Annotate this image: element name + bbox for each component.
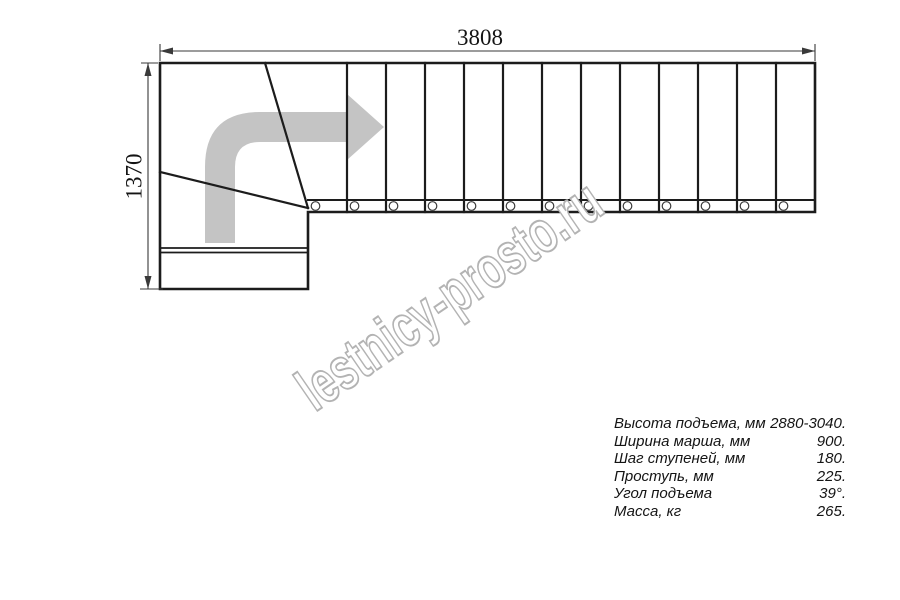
spec-row: Шаг ступеней, мм180. — [614, 450, 846, 468]
spec-label: Высота подъема, мм — [614, 415, 766, 433]
spec-row: Масса, кг265. — [614, 503, 846, 521]
spec-label: Шаг ступеней, мм — [614, 450, 745, 468]
baluster-circle — [350, 202, 359, 211]
width-dimension-label: 1370 — [122, 131, 147, 223]
spec-label: Ширина марша, мм — [614, 433, 750, 451]
spec-label: Масса, кг — [614, 503, 681, 521]
baluster-circle — [389, 202, 398, 211]
baluster-circle — [701, 202, 710, 211]
spec-label: Проступь, мм — [614, 468, 714, 486]
watermark-text: lestnicy-prosto.ru — [284, 167, 614, 423]
baluster-circle — [467, 202, 476, 211]
baluster-circle — [662, 202, 671, 211]
direction-arrow — [205, 94, 384, 243]
dimension-arrowhead — [145, 276, 152, 289]
dimension-arrowhead — [145, 63, 152, 76]
spec-row: Высота подъема, мм2880-3040. — [614, 415, 846, 433]
spec-value: 180. — [817, 450, 846, 468]
baluster-circle — [779, 202, 788, 211]
baluster-circle — [311, 202, 320, 211]
spec-value: 39°. — [819, 485, 846, 503]
stair-plan-canvas: lestnicy-prosto.ru 3808 1370 Высота подъ… — [0, 0, 900, 600]
spec-row: Проступь, мм225. — [614, 468, 846, 486]
baluster-circle — [623, 202, 632, 211]
spec-value: 900. — [817, 433, 846, 451]
dimension-arrowhead — [802, 48, 815, 55]
spec-label: Угол подъема — [614, 485, 712, 503]
spec-value: 265. — [817, 503, 846, 521]
spec-value: 2880-3040. — [770, 415, 846, 433]
spec-table: Высота подъема, мм2880-3040.Ширина марша… — [614, 415, 846, 520]
spec-row: Ширина марша, мм900. — [614, 433, 846, 451]
spec-row: Угол подъема39°. — [614, 485, 846, 503]
baluster-circle — [740, 202, 749, 211]
dimension-arrowhead — [160, 48, 173, 55]
length-dimension-label: 3808 — [425, 25, 535, 51]
spec-value: 225. — [817, 468, 846, 486]
baluster-circle — [428, 202, 437, 211]
